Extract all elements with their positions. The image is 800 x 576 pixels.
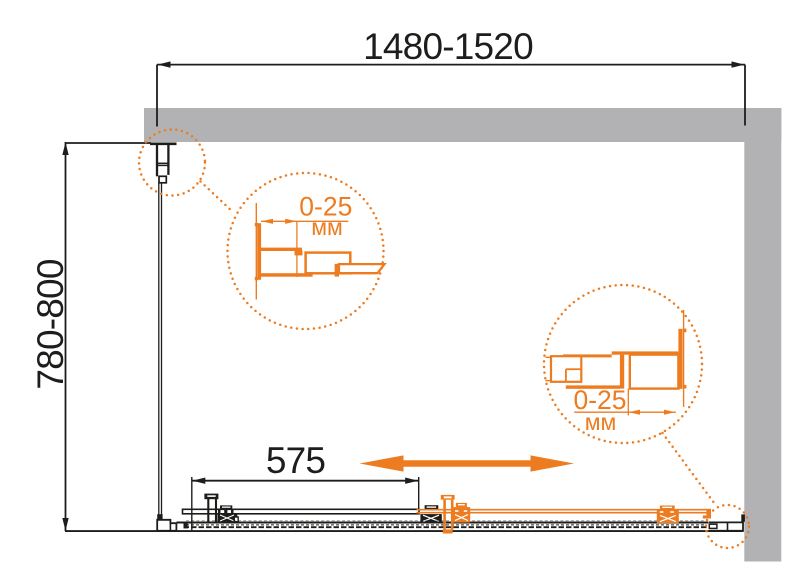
svg-text:1480-1520: 1480-1520	[363, 26, 533, 67]
svg-text:мм: мм	[585, 409, 617, 435]
svg-text:780-800: 780-800	[30, 259, 71, 389]
svg-text:575: 575	[266, 440, 326, 481]
svg-text:мм: мм	[311, 214, 343, 240]
